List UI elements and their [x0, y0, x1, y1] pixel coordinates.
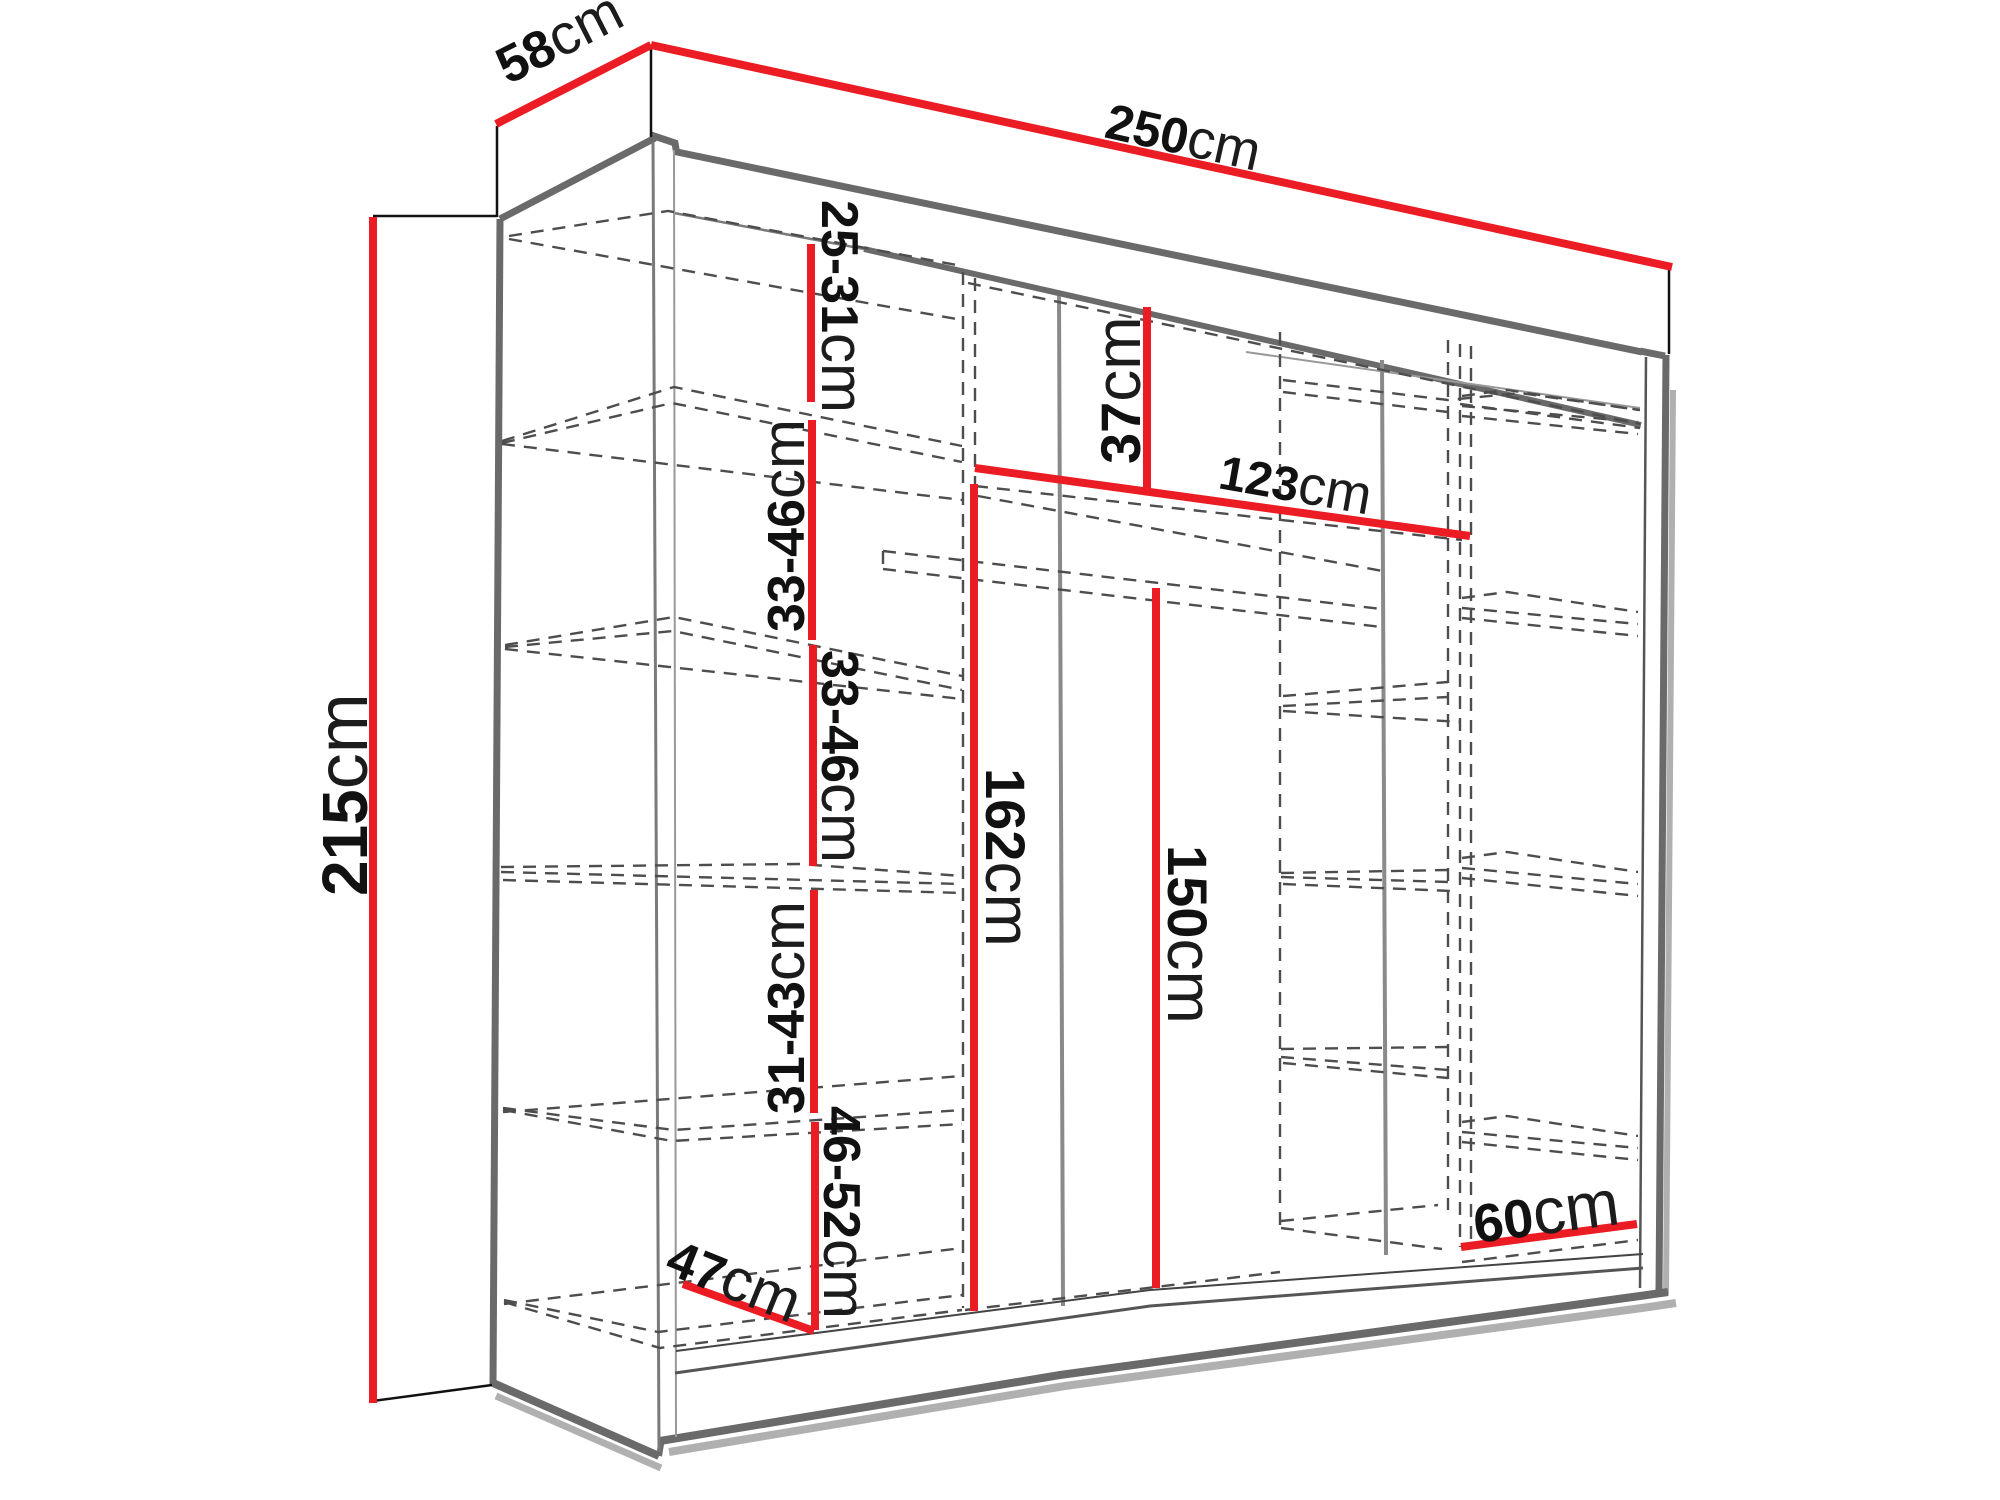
- svg-text:150cm: 150cm: [1154, 845, 1226, 1024]
- svg-text:37cm: 37cm: [1082, 316, 1154, 464]
- svg-text:46-52cm: 46-52cm: [811, 1106, 878, 1319]
- svg-text:215cm: 215cm: [303, 693, 383, 896]
- svg-text:33-46cm: 33-46cm: [750, 419, 817, 632]
- svg-text:162cm: 162cm: [972, 768, 1044, 947]
- svg-text:33-46cm: 33-46cm: [809, 650, 876, 863]
- svg-text:31-43cm: 31-43cm: [750, 901, 817, 1114]
- svg-text:25-31cm: 25-31cm: [809, 200, 876, 413]
